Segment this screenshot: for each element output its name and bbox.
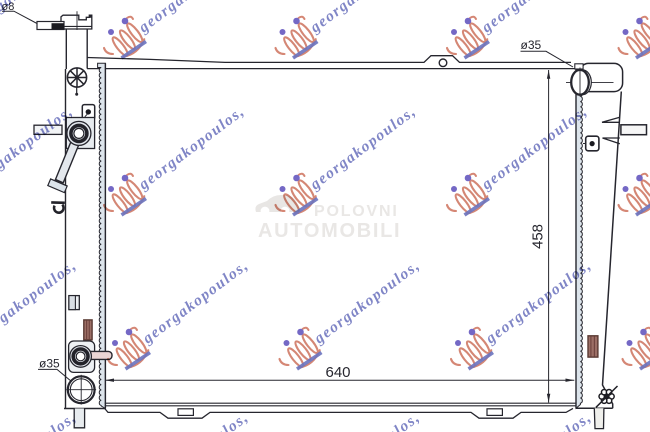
svg-text:458: 458 — [530, 224, 547, 249]
svg-text:ø35: ø35 — [39, 357, 60, 371]
svg-text:640: 640 — [325, 364, 350, 381]
svg-text:AUTOMOBILI: AUTOMOBILI — [258, 220, 401, 242]
svg-text:ø35: ø35 — [521, 38, 542, 52]
svg-text:POLOVNI: POLOVNI — [314, 203, 399, 220]
